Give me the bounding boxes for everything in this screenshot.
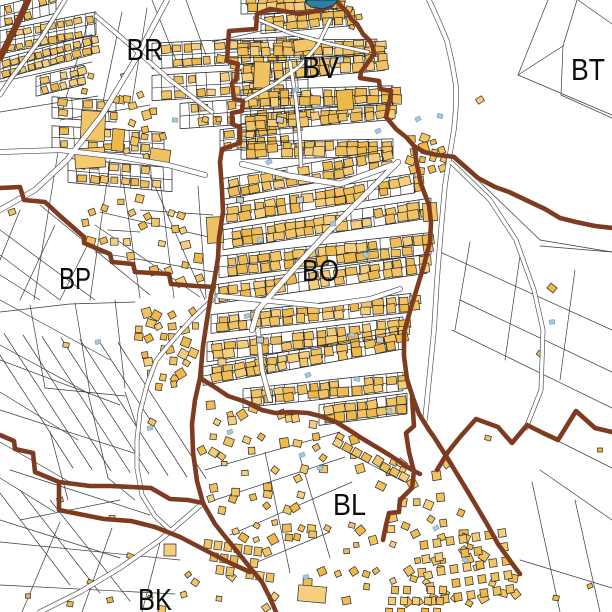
svg-text:BO: BO — [302, 253, 339, 288]
svg-text:BR: BR — [127, 32, 164, 67]
svg-text:BK: BK — [138, 582, 172, 612]
svg-text:BV: BV — [302, 50, 339, 85]
svg-text:BP: BP — [59, 261, 91, 296]
svg-text:BT: BT — [571, 52, 605, 87]
svg-text:BL: BL — [333, 487, 366, 522]
